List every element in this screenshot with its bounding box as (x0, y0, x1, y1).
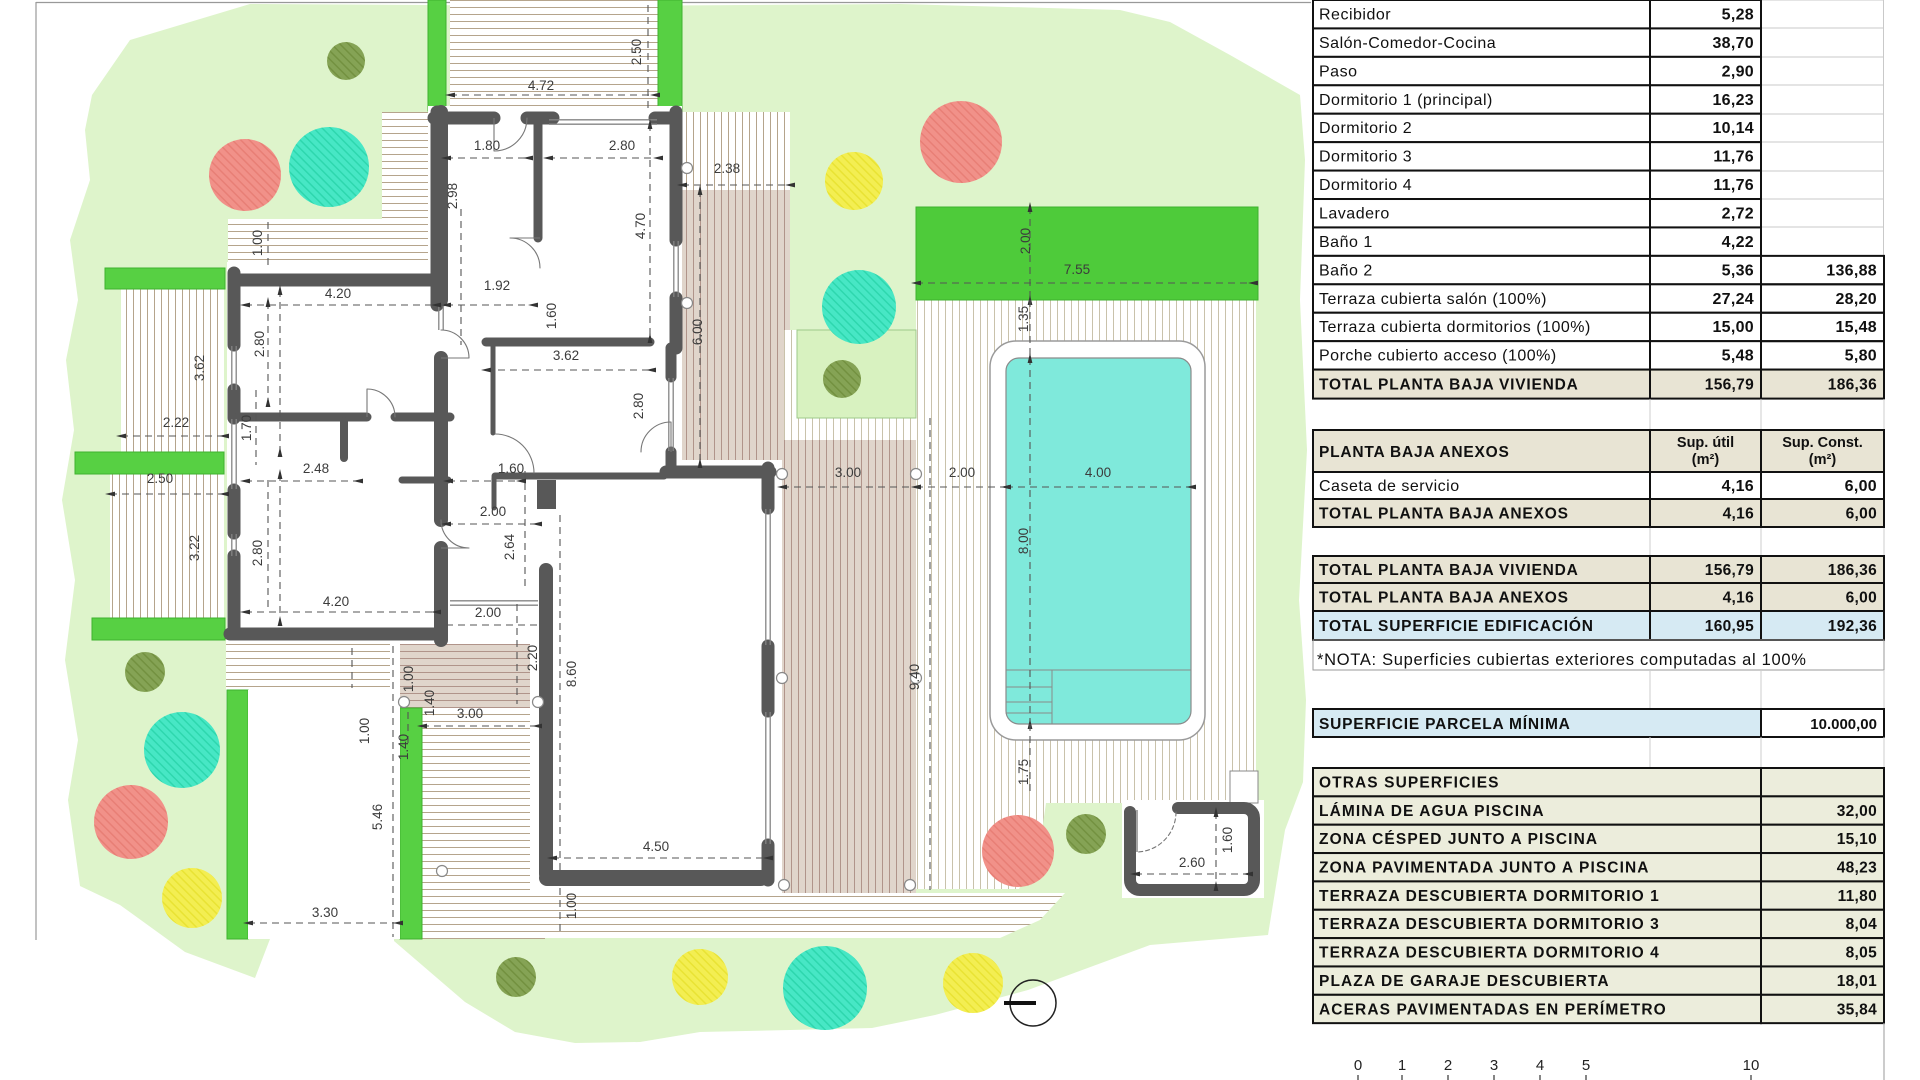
svg-text:2.20: 2.20 (525, 645, 540, 671)
svg-text:TERRAZA DESCUBIERTA DORMITORIO: TERRAZA DESCUBIERTA DORMITORIO 4 (1319, 945, 1660, 962)
svg-text:4,16: 4,16 (1723, 505, 1754, 522)
svg-text:1: 1 (1398, 1057, 1406, 1074)
svg-text:15,00: 15,00 (1712, 319, 1754, 336)
svg-text:TERRAZA DESCUBIERTA DORMITORIO: TERRAZA DESCUBIERTA DORMITORIO 3 (1319, 916, 1660, 933)
svg-text:38,70: 38,70 (1712, 35, 1754, 52)
svg-text:16,23: 16,23 (1712, 92, 1754, 109)
svg-text:18,01: 18,01 (1837, 973, 1877, 990)
svg-text:1.35: 1.35 (1016, 306, 1031, 332)
svg-text:2.98: 2.98 (445, 183, 460, 209)
svg-text:8,05: 8,05 (1846, 945, 1877, 962)
svg-text:2.80: 2.80 (250, 540, 265, 566)
svg-text:Caseta de servicio: Caseta de servicio (1319, 478, 1460, 495)
svg-text:TOTAL SUPERFICIE EDIFICACIÓN: TOTAL SUPERFICIE EDIFICACIÓN (1319, 617, 1594, 635)
svg-text:136,88: 136,88 (1826, 262, 1877, 279)
svg-text:ACERAS PAVIMENTADAS EN PERÍMET: ACERAS PAVIMENTADAS EN PERÍMETRO (1319, 1001, 1667, 1018)
svg-text:35,84: 35,84 (1837, 1001, 1877, 1018)
svg-text:2.64: 2.64 (502, 533, 517, 560)
svg-text:10: 10 (1743, 1057, 1760, 1074)
svg-text:3.00: 3.00 (835, 465, 861, 480)
svg-text:LÁMINA DE AGUA PISCINA: LÁMINA DE AGUA PISCINA (1319, 803, 1545, 820)
svg-text:6,00: 6,00 (1845, 478, 1877, 495)
svg-text:4.20: 4.20 (325, 286, 351, 301)
svg-text:186,36: 186,36 (1828, 376, 1877, 393)
svg-text:Recibidor: Recibidor (1319, 7, 1391, 24)
svg-text:*NOTA: Superficies cubiertas e: *NOTA: Superficies cubiertas exteriores … (1317, 651, 1807, 669)
svg-text:48,23: 48,23 (1837, 860, 1877, 877)
svg-text:156,79: 156,79 (1705, 376, 1754, 393)
svg-text:4: 4 (1536, 1057, 1544, 1074)
svg-text:Dormitorio 4: Dormitorio 4 (1319, 177, 1412, 194)
svg-text:192,36: 192,36 (1828, 618, 1877, 635)
svg-text:Lavadero: Lavadero (1319, 206, 1390, 223)
svg-text:4,16: 4,16 (1722, 478, 1754, 495)
svg-text:PLAZA DE GARAJE DESCUBIERTA: PLAZA DE GARAJE DESCUBIERTA (1319, 973, 1610, 990)
svg-text:160,95: 160,95 (1705, 618, 1754, 635)
svg-text:27,24: 27,24 (1712, 291, 1754, 308)
svg-text:5,48: 5,48 (1722, 348, 1754, 365)
svg-text:Dormitorio 2: Dormitorio 2 (1319, 120, 1412, 137)
svg-text:9.40: 9.40 (907, 664, 922, 690)
svg-text:Salón-Comedor-Cocina: Salón-Comedor-Cocina (1319, 35, 1496, 52)
svg-text:186,36: 186,36 (1828, 562, 1877, 579)
svg-text:2.00: 2.00 (475, 605, 501, 620)
svg-text:4.20: 4.20 (323, 594, 349, 609)
svg-text:11,76: 11,76 (1713, 177, 1754, 194)
svg-text:2.38: 2.38 (714, 161, 740, 176)
svg-text:3.62: 3.62 (553, 348, 579, 363)
svg-text:Dormitorio 1 (principal): Dormitorio 1 (principal) (1319, 92, 1493, 109)
svg-text:1.00: 1.00 (357, 718, 372, 744)
svg-text:4,16: 4,16 (1723, 589, 1754, 606)
svg-text:Baño 2: Baño 2 (1319, 262, 1373, 279)
svg-text:2.00: 2.00 (480, 504, 506, 519)
svg-text:3.62: 3.62 (192, 355, 207, 381)
svg-text:15,48: 15,48 (1835, 319, 1877, 336)
svg-text:5,36: 5,36 (1722, 262, 1754, 279)
svg-text:(m²): (m²) (1692, 452, 1720, 468)
svg-text:TOTAL PLANTA BAJA VIVIENDA: TOTAL PLANTA BAJA VIVIENDA (1319, 562, 1579, 579)
svg-text:7.55: 7.55 (1064, 262, 1090, 277)
svg-text:0: 0 (1354, 1057, 1362, 1074)
svg-text:2: 2 (1444, 1057, 1452, 1074)
svg-text:5: 5 (1582, 1057, 1590, 1074)
svg-text:TOTAL PLANTA BAJA ANEXOS: TOTAL PLANTA BAJA ANEXOS (1319, 589, 1569, 606)
svg-text:ZONA PAVIMENTADA JUNTO A PISCI: ZONA PAVIMENTADA JUNTO A PISCINA (1319, 860, 1650, 877)
svg-text:28,20: 28,20 (1835, 291, 1877, 308)
svg-text:Porche cubierto acceso (100%): Porche cubierto acceso (100%) (1319, 348, 1557, 365)
svg-text:Sup. Const.: Sup. Const. (1782, 435, 1863, 451)
svg-text:2.48: 2.48 (303, 461, 329, 476)
svg-text:6.00: 6.00 (690, 319, 705, 345)
svg-text:2.80: 2.80 (631, 393, 646, 419)
svg-text:(m²): (m²) (1809, 452, 1837, 468)
svg-text:3.30: 3.30 (312, 905, 338, 920)
svg-text:TOTAL PLANTA BAJA ANEXOS: TOTAL PLANTA BAJA ANEXOS (1319, 505, 1569, 522)
svg-text:3.22: 3.22 (187, 535, 202, 561)
svg-text:4.00: 4.00 (1085, 465, 1111, 480)
svg-text:2.50: 2.50 (147, 471, 173, 486)
svg-text:Paso: Paso (1319, 63, 1357, 80)
svg-text:1.70: 1.70 (239, 415, 254, 441)
svg-text:11,80: 11,80 (1838, 888, 1877, 905)
svg-text:2.50: 2.50 (629, 39, 644, 65)
svg-text:1.92: 1.92 (484, 278, 510, 293)
svg-text:1.60: 1.60 (1220, 827, 1235, 853)
svg-text:OTRAS SUPERFICIES: OTRAS SUPERFICIES (1319, 774, 1500, 791)
svg-text:Terraza cubierta salón (100%): Terraza cubierta salón (100%) (1319, 291, 1547, 308)
svg-text:Sup. útil: Sup. útil (1677, 435, 1734, 451)
svg-text:Terraza cubierta dormitorios (: Terraza cubierta dormitorios (100%) (1319, 319, 1591, 336)
svg-text:1.80: 1.80 (474, 138, 500, 153)
svg-text:2.00: 2.00 (1018, 228, 1033, 254)
svg-text:6,00: 6,00 (1846, 589, 1877, 606)
svg-text:8.00: 8.00 (1016, 528, 1031, 554)
svg-text:Baño 1: Baño 1 (1319, 234, 1373, 251)
svg-text:2,72: 2,72 (1722, 206, 1754, 223)
svg-text:1.60: 1.60 (544, 303, 559, 329)
svg-text:1.40: 1.40 (396, 734, 411, 760)
svg-text:2.22: 2.22 (163, 415, 189, 430)
svg-text:2.80: 2.80 (609, 138, 635, 153)
svg-text:1.00: 1.00 (401, 666, 416, 692)
svg-text:1.00: 1.00 (250, 230, 265, 256)
svg-text:4.50: 4.50 (643, 839, 669, 854)
svg-text:2.80: 2.80 (252, 331, 267, 357)
svg-text:Dormitorio 3: Dormitorio 3 (1319, 149, 1412, 166)
svg-text:10.000,00: 10.000,00 (1810, 716, 1877, 733)
svg-text:4,22: 4,22 (1722, 234, 1754, 251)
svg-text:4.70: 4.70 (633, 213, 648, 239)
svg-text:ZONA CÉSPED JUNTO A PISCINA: ZONA CÉSPED JUNTO A PISCINA (1319, 831, 1598, 848)
svg-text:156,79: 156,79 (1705, 562, 1754, 579)
svg-text:5,28: 5,28 (1722, 7, 1754, 24)
svg-text:1.40: 1.40 (422, 690, 437, 716)
svg-text:32,00: 32,00 (1837, 803, 1877, 820)
svg-text:8,04: 8,04 (1846, 916, 1877, 933)
svg-text:6,00: 6,00 (1846, 505, 1877, 522)
svg-text:TOTAL PLANTA BAJA VIVIENDA: TOTAL PLANTA BAJA VIVIENDA (1319, 376, 1579, 393)
svg-text:8.60: 8.60 (564, 661, 579, 687)
svg-text:1.75: 1.75 (1016, 759, 1031, 785)
svg-text:2.00: 2.00 (949, 465, 975, 480)
svg-text:5.46: 5.46 (370, 804, 385, 830)
svg-text:5,80: 5,80 (1845, 348, 1877, 365)
svg-text:PLANTA BAJA ANEXOS: PLANTA BAJA ANEXOS (1319, 444, 1510, 461)
svg-text:SUPERFICIE PARCELA MÍNIMA: SUPERFICIE PARCELA MÍNIMA (1319, 716, 1571, 733)
svg-text:2.60: 2.60 (1179, 855, 1205, 870)
svg-text:15,10: 15,10 (1837, 831, 1877, 848)
svg-text:TERRAZA DESCUBIERTA DORMITORIO: TERRAZA DESCUBIERTA DORMITORIO 1 (1319, 888, 1660, 905)
svg-text:10,14: 10,14 (1712, 120, 1754, 137)
svg-text:1.00: 1.00 (564, 893, 579, 919)
svg-text:4.72: 4.72 (528, 78, 554, 93)
svg-text:3.00: 3.00 (457, 706, 483, 721)
svg-text:2,90: 2,90 (1722, 63, 1754, 80)
svg-text:1.60: 1.60 (498, 461, 524, 476)
svg-text:11,76: 11,76 (1713, 149, 1754, 166)
svg-text:3: 3 (1490, 1057, 1498, 1074)
